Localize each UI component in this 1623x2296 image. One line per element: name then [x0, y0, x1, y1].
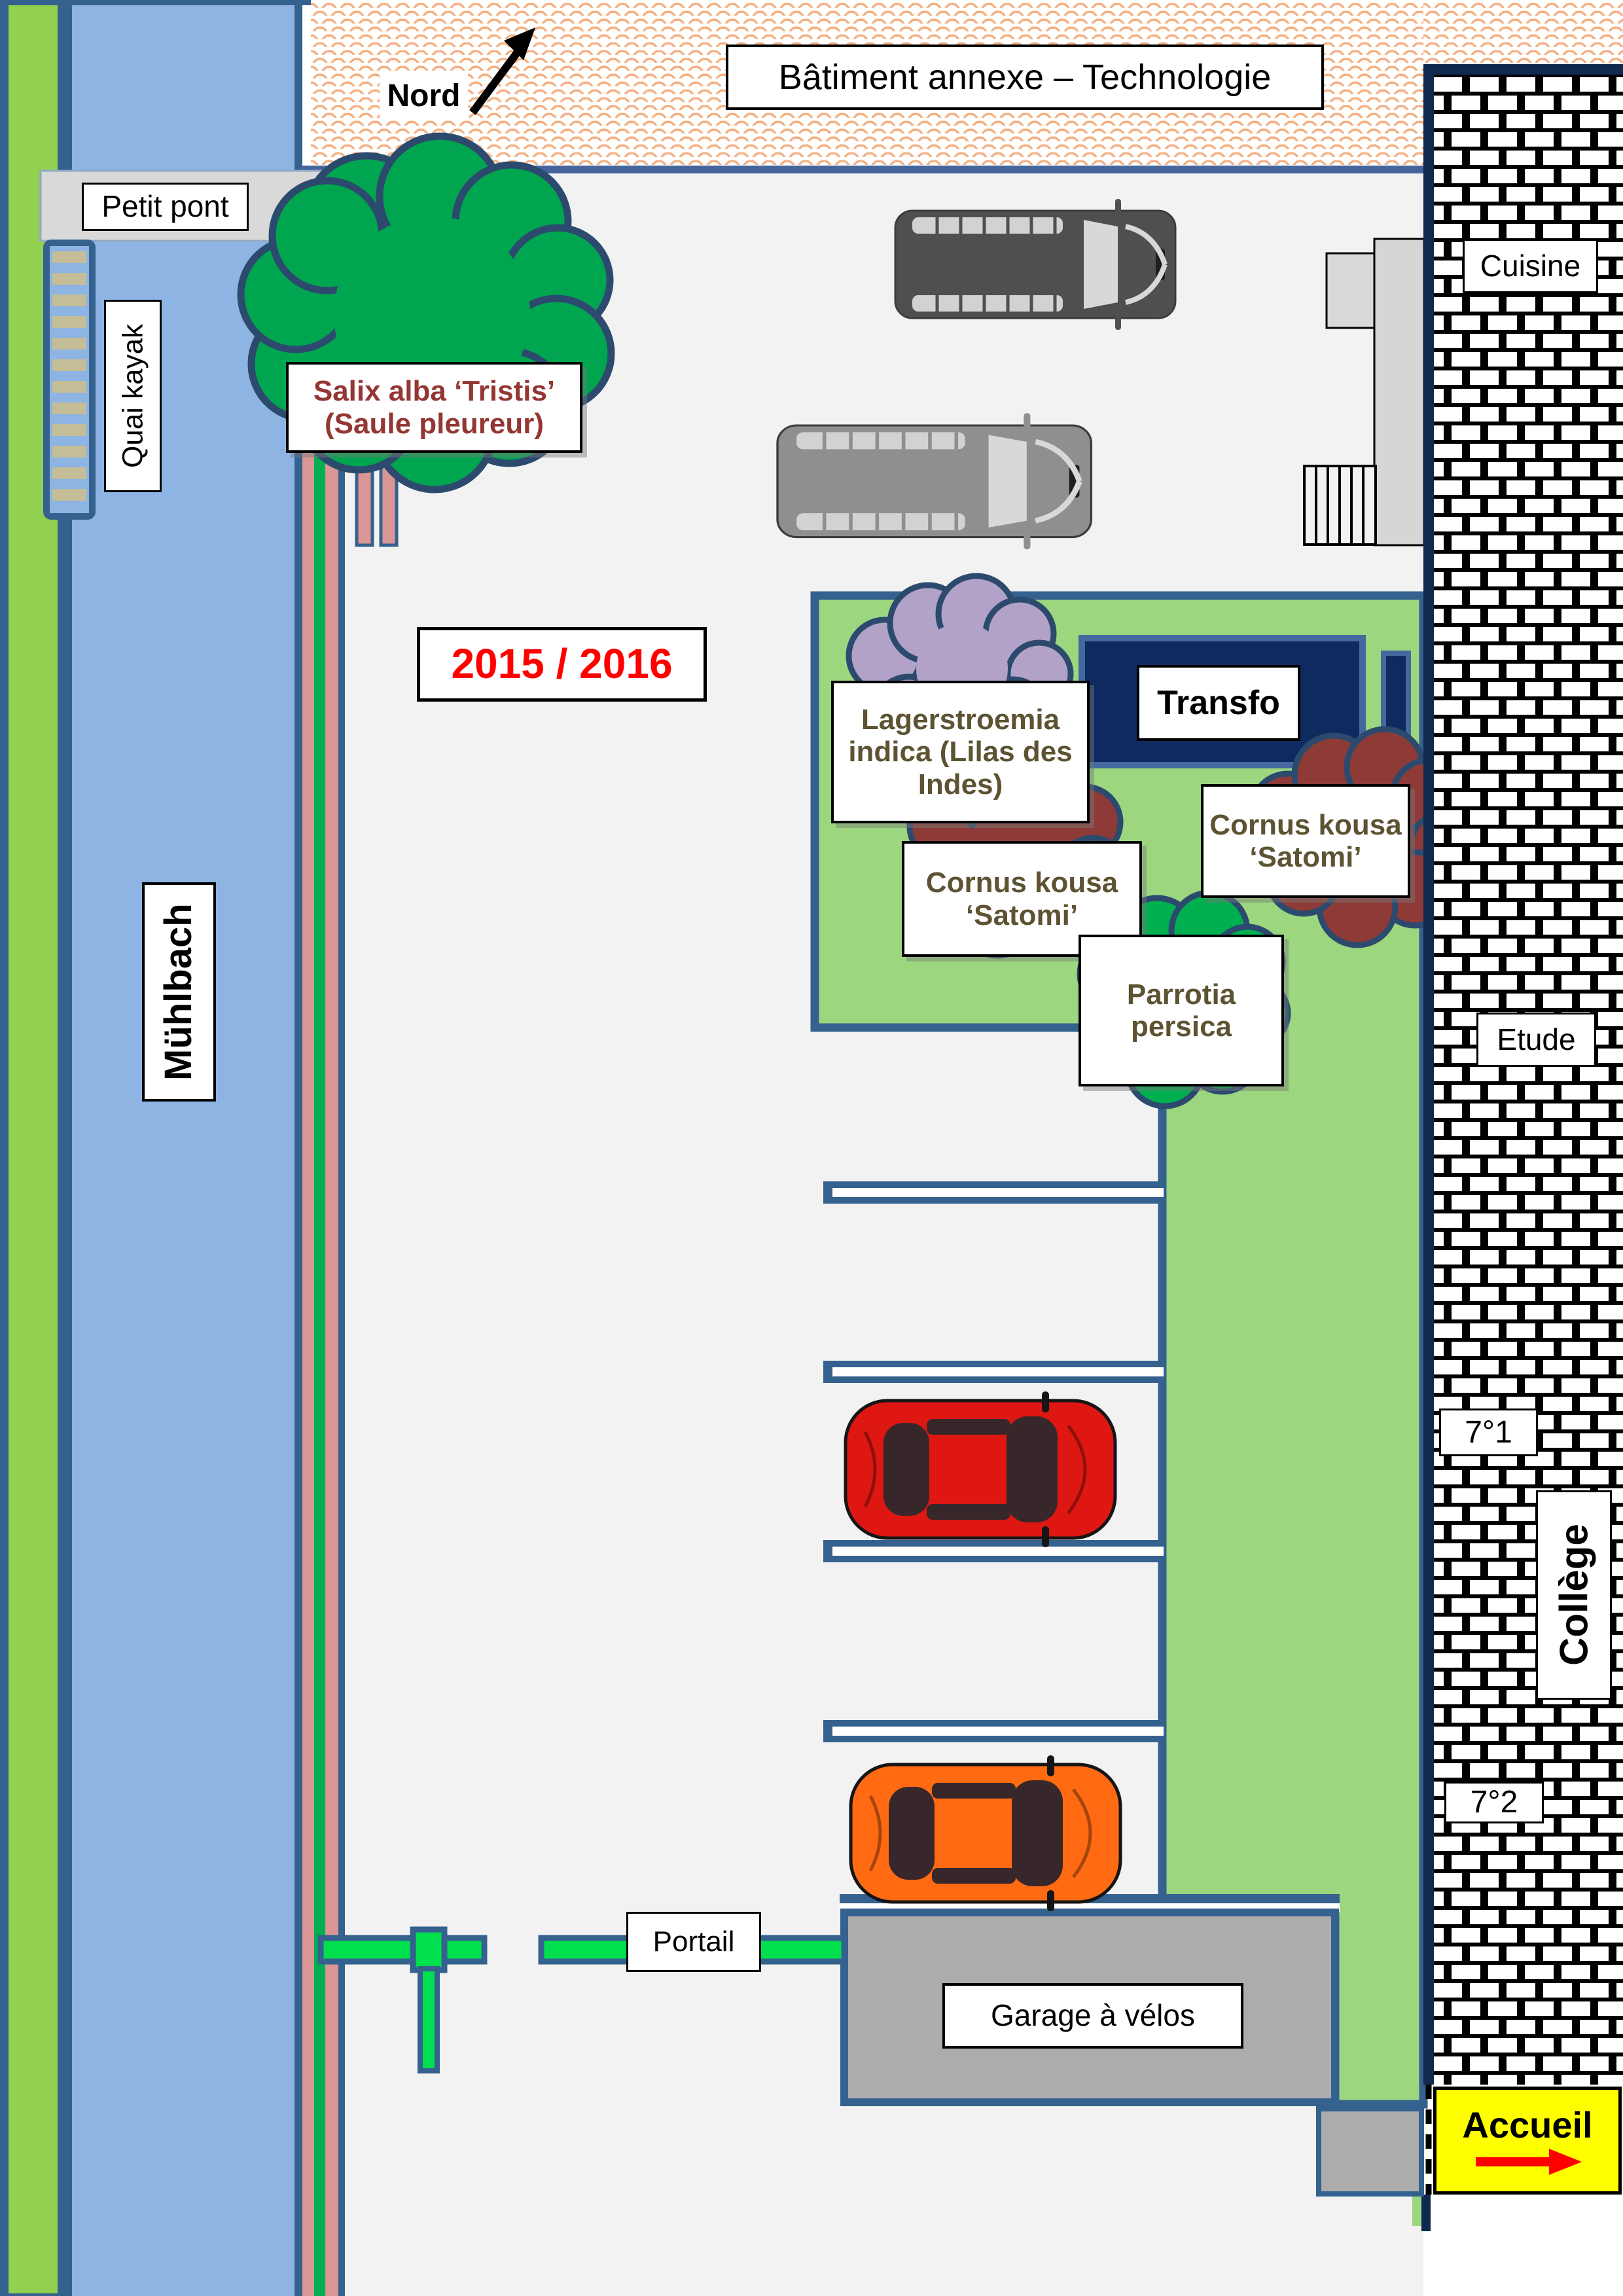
gate-label: Portail	[626, 1912, 761, 1972]
labels-layer: Nord Bâtiment annexe – Technologie Petit…	[0, 0, 1623, 2296]
school-site-plan: Nord Bâtiment annexe – Technologie Petit…	[0, 0, 1623, 2296]
room-7-2-label: 7°2	[1444, 1782, 1544, 1823]
accueil-arrow-icon	[1472, 2147, 1583, 2176]
kayak-dock-label: Quai kayak	[104, 300, 162, 492]
etude-label: Etude	[1476, 1013, 1596, 1067]
parrotia-label: Parrotia persica	[1079, 935, 1284, 1086]
lagerstroemia-label: Lagerstroemia indica (Lilas des Indes)	[831, 681, 1090, 823]
college-label: Collège	[1536, 1490, 1612, 1700]
willow-label: Salix alba ‘Tristis’ (Saule pleureur)	[286, 362, 582, 453]
school-year-label: 2015 / 2016	[417, 627, 707, 702]
cuisine-label: Cuisine	[1463, 239, 1598, 293]
accueil-label: Accueil	[1433, 2087, 1622, 2195]
annex-building-label: Bâtiment annexe – Technologie	[726, 45, 1324, 110]
small-bridge-label: Petit pont	[82, 183, 249, 231]
transfo-label: Transfo	[1137, 665, 1300, 741]
cornus-right-label: Cornus kousa ‘Satomi’	[1201, 784, 1410, 898]
river-name-label: Mühlbach	[142, 882, 216, 1102]
room-7-1-label: 7°1	[1439, 1408, 1538, 1456]
north-label: Nord	[380, 73, 468, 119]
bike-garage-label: Garage à vélos	[942, 1983, 1243, 2049]
